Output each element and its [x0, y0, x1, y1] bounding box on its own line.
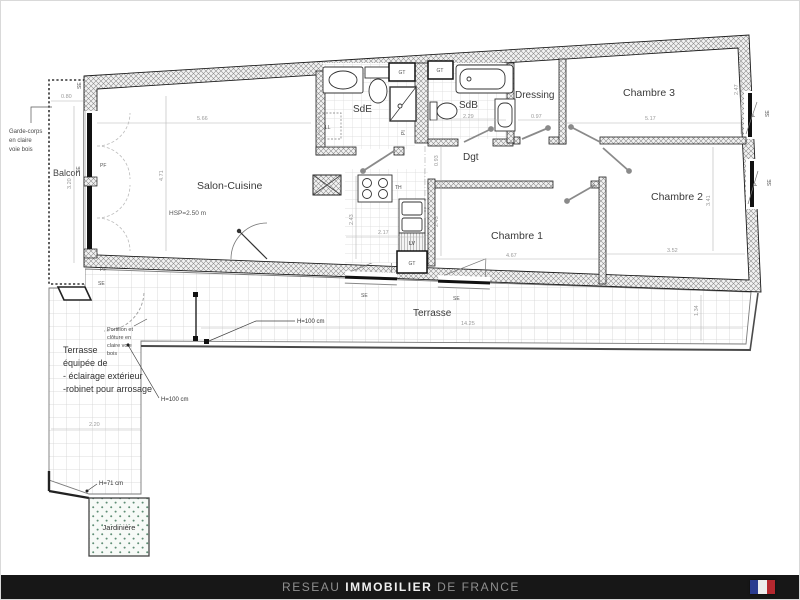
burner [363, 179, 372, 188]
note-text: H=71 cm [99, 481, 123, 487]
left-wall-windows [84, 111, 98, 258]
gt-label: GT [437, 68, 444, 74]
entrance-door [231, 223, 267, 259]
dim-ch2-depth: 3.41 [706, 195, 712, 206]
flag-blue-stripe [750, 580, 758, 594]
th-label: TH [395, 185, 402, 191]
wall-sde-bottom [316, 147, 356, 155]
bathtub-drain [467, 77, 471, 81]
note-line: Terrasse [63, 345, 98, 355]
note-text: H=100 cm [297, 319, 325, 325]
pf2-door-arcs [97, 185, 130, 251]
note-line: Portillon et [107, 327, 133, 333]
f-tag: F [751, 114, 757, 117]
french-flag-icon [750, 580, 775, 594]
jardiniere-label: Jardinière [103, 523, 136, 532]
se-tag: SE [77, 82, 83, 89]
se-tag: SE [453, 296, 460, 302]
dim-kitchen-width: 2.17 [378, 230, 389, 236]
dim-terrasse-left-width: 2.20 [89, 422, 100, 428]
dim-ch3-width: 5.17 [645, 116, 656, 122]
salon-label: Salon-Cuisine [197, 180, 263, 192]
fence-post [193, 292, 198, 297]
se-tag: SE [767, 179, 773, 186]
balcony-step [58, 287, 91, 300]
shower-drain [398, 104, 402, 108]
pf-window-1 [87, 113, 92, 177]
dim-dgt-width: 0.93 [434, 155, 440, 166]
pi-label: PI [401, 130, 407, 135]
note-line: clôture en [107, 335, 131, 341]
sink-bowl [402, 218, 422, 231]
gt-label: GT [409, 261, 416, 267]
note-line: équipée de [63, 358, 108, 368]
sdb-label: SdB [459, 100, 478, 111]
cooktop [358, 175, 392, 202]
wall-sde-bottom-stub [394, 147, 404, 155]
f-tag: F [753, 183, 759, 186]
terrace-outer-edge-bottom [141, 346, 750, 350]
washbasin-bowl [498, 103, 512, 127]
dim-ch3-depth: 2.47 [734, 84, 740, 95]
brand-main: IMMOBILIER [345, 580, 432, 594]
garde-corps-note: Garde-corps en claire voie bois [9, 107, 52, 153]
dim-ch2-width: 3.52 [667, 248, 678, 254]
dim-balcon-width: 0.80 [61, 94, 72, 100]
door-knob [361, 169, 365, 173]
burner [363, 190, 372, 199]
dim-terrasse-length: 14.25 [461, 321, 475, 327]
note-line: voie bois [9, 147, 33, 153]
door-knob [627, 169, 631, 173]
dim-terrasse-depth: 1.34 [694, 305, 700, 316]
structural-pillar [313, 175, 341, 195]
pf-window-2 [87, 185, 92, 249]
ch1-door [567, 185, 595, 201]
ch2-door [603, 148, 629, 171]
terrasse-label: Terrasse [413, 308, 452, 319]
screenshot: Jardinière Balcon [0, 0, 800, 600]
brand-prefix: RESEAU [282, 580, 340, 594]
note-line: bois [107, 351, 117, 357]
chambre2-label: Chambre 2 [651, 191, 703, 203]
dim-balcon-length: 3.20 [67, 178, 73, 189]
wall-sdb-bottom [428, 139, 458, 146]
wall-dgt-ch1 [428, 181, 553, 188]
pf-tag: PF [100, 267, 106, 273]
dressing-label: Dressing [515, 90, 554, 101]
washbasin-bowl [329, 71, 357, 89]
se-tag: SE [361, 293, 368, 299]
wall-ch1-ch2 [599, 177, 606, 284]
fence-post [204, 339, 209, 344]
fence-post [193, 336, 198, 341]
dim-dressing-width: 0.97 [531, 114, 542, 120]
note-line: - éclairage extérieur [63, 371, 143, 381]
se-tag: SE [98, 281, 105, 287]
floor-plan-drawing: Jardinière Balcon [1, 1, 800, 577]
door-knob [489, 127, 493, 131]
window-frame [438, 281, 490, 283]
ch3-door [571, 127, 600, 142]
sde-label: SdE [353, 104, 372, 115]
se-tag: SE [765, 110, 771, 117]
footer-bar: RESEAU IMMOBILIER DE FRANCE [1, 575, 800, 599]
terrace-floor [49, 269, 751, 494]
dressing-door [522, 128, 548, 139]
toilet-bowl [437, 103, 457, 119]
terrace-outer-edge-right [750, 293, 758, 351]
burner [379, 190, 388, 199]
wall-pier [84, 249, 97, 258]
gt-label: GT [399, 70, 406, 76]
wall-dressing-ch3 [559, 59, 566, 144]
salon-hsp-label: HSP=2.50 m [169, 210, 206, 217]
toilet-tank [365, 67, 391, 78]
dim-kitchen-depth: 2.43 [349, 214, 355, 225]
wall-ch3-bottom [600, 137, 746, 144]
dim-salon-length: 4.71 [159, 170, 165, 181]
wall-shower-sdb [415, 63, 428, 143]
lv-label: LV [409, 241, 416, 247]
pf-tag: PF [100, 163, 106, 169]
dgt-label: Dgt [463, 152, 479, 163]
door-knob [569, 125, 573, 129]
sde-door [363, 151, 394, 171]
toilet-tank [430, 102, 437, 120]
ll-label: LL [325, 125, 331, 131]
dim-sdb-width: 2.29 [463, 114, 474, 120]
note-line: -robinet pour arrosage [63, 384, 152, 394]
wall-dressing-bottom-stub [514, 137, 520, 144]
chambre3-label: Chambre 3 [623, 87, 675, 99]
burner [379, 179, 388, 188]
note-line: en claire [9, 138, 32, 144]
dim-salon-width: 5.66 [197, 116, 208, 122]
door-knob [565, 199, 569, 203]
sink-bowl [402, 202, 422, 215]
note-line: Garde-corps [9, 129, 42, 135]
brand-text: RESEAU IMMOBILIER DE FRANCE [282, 580, 520, 594]
chambre1-label: Chambre 1 [491, 230, 543, 242]
brand-suffix: DE FRANCE [437, 580, 520, 594]
flag-white-stripe [758, 580, 766, 594]
window-frame [345, 277, 397, 279]
door-knob [546, 126, 550, 130]
toilet-bowl [369, 79, 387, 103]
flag-red-stripe [767, 580, 775, 594]
dim-ch1-depth: 2.43 [434, 216, 440, 227]
floor-plan: Jardinière Balcon [1, 1, 800, 577]
se-tag: SE [76, 166, 82, 173]
dim-ch1-width: 4.67 [506, 253, 517, 259]
note-text: H=100 cm [161, 397, 189, 403]
wall-pier [84, 177, 97, 186]
